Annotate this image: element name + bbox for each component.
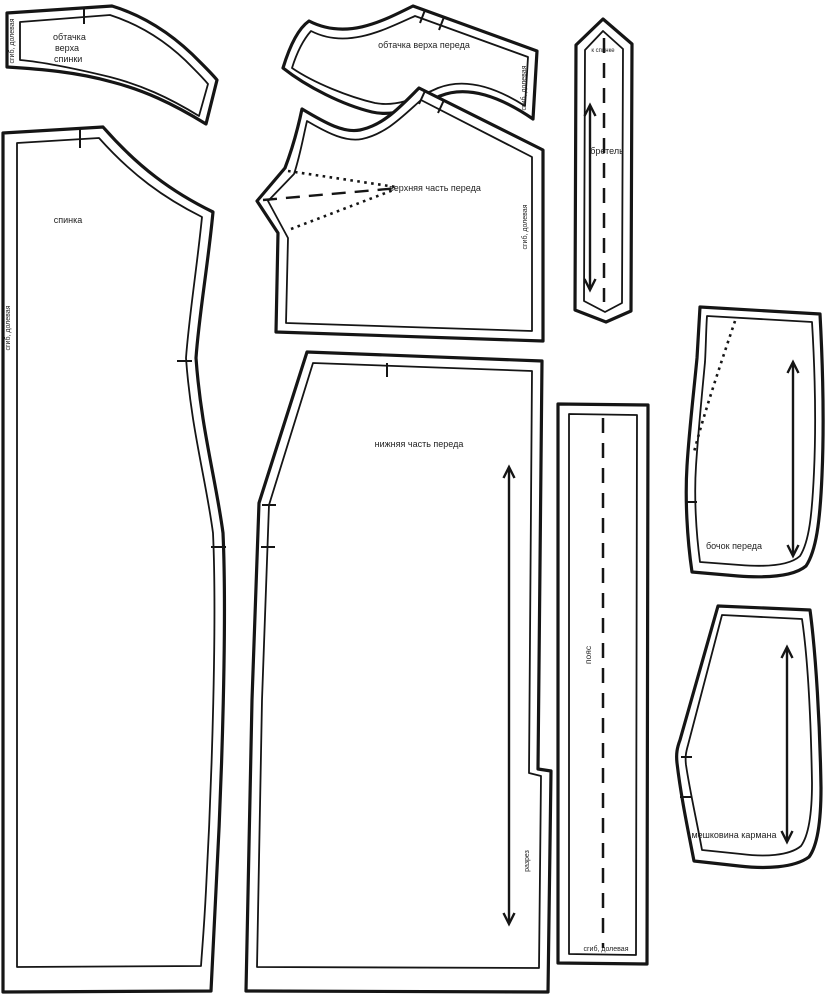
- front-side-cut-line: [686, 307, 823, 577]
- piece-label: мешковина кармана: [691, 830, 776, 840]
- grainline-fold-text: сгиб, долевая: [584, 945, 629, 953]
- piece-front-side: бочок переда: [685, 307, 823, 577]
- piece-back: спинка сгиб, долевая: [3, 127, 226, 992]
- piece-belt: пояс сгиб, долевая: [558, 404, 648, 964]
- piece-label: верхняя часть переда: [389, 183, 481, 193]
- piece-label: нижняя часть переда: [375, 439, 464, 449]
- grainline-fold-text: сгиб, долевая: [521, 204, 529, 249]
- piece-label: бретель: [590, 146, 624, 156]
- piece-label: спинки: [54, 54, 82, 64]
- piece-label: пояс: [583, 645, 593, 664]
- piece-label: спинка: [54, 215, 83, 225]
- to-back-text: к спинке: [591, 48, 615, 54]
- piece-label: обтачка верха переда: [378, 40, 470, 50]
- piece-front-lower: нижняя часть переда разрез: [246, 352, 551, 992]
- pattern-canvas: обтачка верха спинки сгиб, долевая обтач…: [0, 0, 830, 1000]
- slit-text: разрез: [524, 850, 531, 872]
- grainline-fold-text: сгиб, долевая: [4, 305, 12, 350]
- piece-label: обтачка: [53, 32, 86, 42]
- piece-label: бочок переда: [706, 541, 762, 551]
- grainline-fold-text: сгиб, долевая: [8, 18, 16, 63]
- piece-label: верха: [55, 43, 79, 53]
- sewing-pattern-sheet: обтачка верха спинки сгиб, долевая обтач…: [0, 0, 830, 1000]
- piece-strap: к спинке бретель: [575, 19, 632, 322]
- grainline-fold-text: сгиб, долевая: [520, 65, 528, 110]
- back-cut-line: [3, 127, 224, 992]
